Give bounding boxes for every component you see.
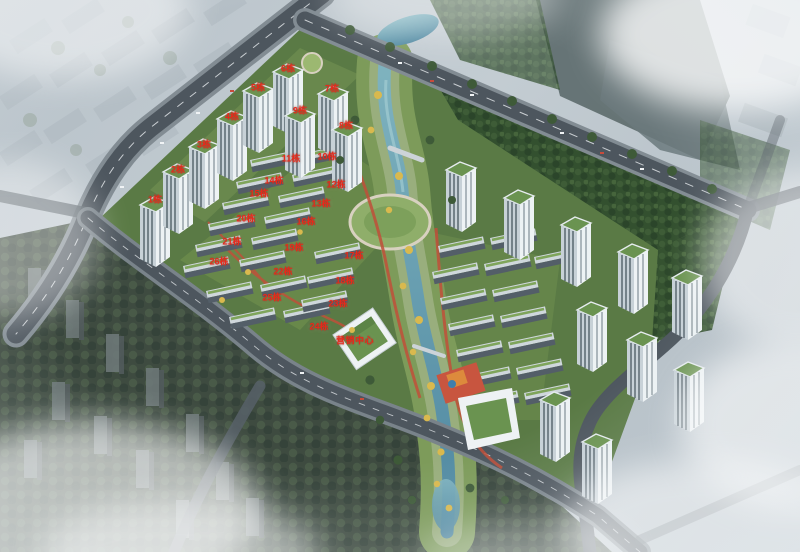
building-label-11: 11栋: [282, 155, 301, 164]
building-label-20: 20栋: [236, 215, 255, 224]
building-label-25: 25栋: [262, 294, 281, 303]
building-label-6: 6栋: [281, 65, 295, 74]
building-label-24: 24栋: [309, 323, 328, 332]
building-label-5: 5栋: [251, 84, 265, 93]
building-label-13: 13栋: [311, 200, 330, 209]
building-label-17: 17栋: [344, 252, 363, 261]
building-label-21: 21栋: [222, 238, 241, 247]
building-label-4: 4栋: [225, 113, 239, 122]
building-label-23: 23栋: [328, 300, 347, 309]
building-label-14: 14栋: [264, 177, 283, 186]
building-label-8: 8栋: [339, 122, 353, 131]
aerial-render-canvas: 1栋2栋3栋4栋5栋6栋7栋8栋9栋10栋11栋12栋13栋14栋15栋16栋1…: [0, 0, 800, 552]
label-layer: 1栋2栋3栋4栋5栋6栋7栋8栋9栋10栋11栋12栋13栋14栋15栋16栋1…: [0, 0, 800, 552]
building-label-15: 15栋: [249, 190, 268, 199]
building-label-3: 3栋: [197, 141, 211, 150]
building-label-12: 12栋: [326, 181, 345, 190]
building-label-marketing-center: 营销中心: [336, 337, 374, 346]
building-label-7: 7栋: [325, 85, 339, 94]
building-label-18: 18栋: [335, 277, 354, 286]
building-label-26: 26栋: [209, 258, 228, 267]
building-label-1: 1栋: [148, 196, 162, 205]
building-label-22: 22栋: [273, 268, 292, 277]
building-label-9: 9栋: [293, 107, 307, 116]
building-label-16: 16栋: [296, 218, 315, 227]
building-label-2: 2栋: [171, 166, 185, 175]
building-label-19: 19栋: [284, 244, 303, 253]
building-label-10: 10栋: [317, 153, 336, 162]
